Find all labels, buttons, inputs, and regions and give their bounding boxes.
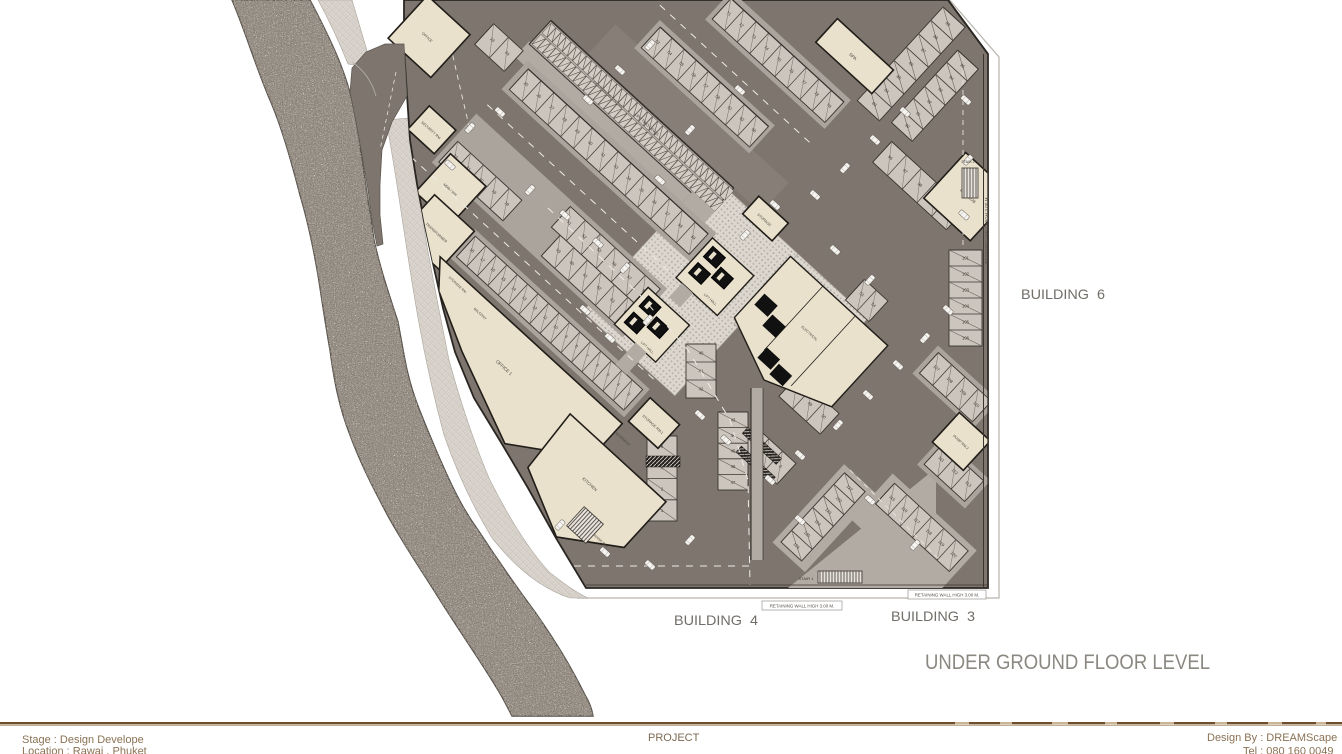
svg-text:BUILDING 4: BUILDING 4 — [674, 612, 758, 628]
svg-text:BUILDING 6: BUILDING 6 — [1021, 286, 1105, 302]
svg-text:Stage : Design Develope: Stage : Design Develope — [22, 734, 144, 746]
svg-text:RETAINING WALL HIGH 3.00 M.: RETAINING WALL HIGH 3.00 M. — [915, 593, 980, 598]
svg-text:PROJECT: PROJECT — [648, 732, 700, 744]
svg-text:101: 101 — [962, 256, 970, 261]
svg-text:102: 102 — [962, 272, 970, 277]
svg-text:46: 46 — [731, 464, 736, 469]
svg-text:45: 45 — [731, 449, 736, 454]
svg-text:BUILDING 3: BUILDING 3 — [891, 608, 975, 624]
svg-text:Location : Rawai , Phuket: Location : Rawai , Phuket — [22, 746, 147, 754]
svg-text:40: 40 — [699, 351, 704, 356]
svg-text:Tel : 080 160 0049: Tel : 080 160 0049 — [1243, 746, 1334, 754]
svg-text:STAIR 1: STAIR 1 — [799, 576, 815, 581]
svg-text:UNDER GROUND FLOOR LEVEL: UNDER GROUND FLOOR LEVEL — [925, 650, 1210, 674]
svg-text:RETAINING WALL HIGH 3.00 M.: RETAINING WALL HIGH 3.00 M. — [984, 196, 989, 263]
svg-text:105: 105 — [962, 320, 970, 325]
svg-text:106: 106 — [962, 336, 970, 341]
svg-text:103: 103 — [962, 288, 970, 293]
svg-text:STAIR 2: STAIR 2 — [961, 160, 974, 164]
svg-text:Design By : DREAMScape: Design By : DREAMScape — [1207, 732, 1337, 744]
svg-text:47: 47 — [731, 480, 736, 485]
svg-text:RETAINING WALL HIGH 3.00 M.: RETAINING WALL HIGH 3.00 M. — [770, 604, 835, 609]
svg-text:42: 42 — [699, 387, 704, 392]
svg-text:43: 43 — [731, 417, 736, 422]
svg-text:104: 104 — [962, 304, 970, 309]
